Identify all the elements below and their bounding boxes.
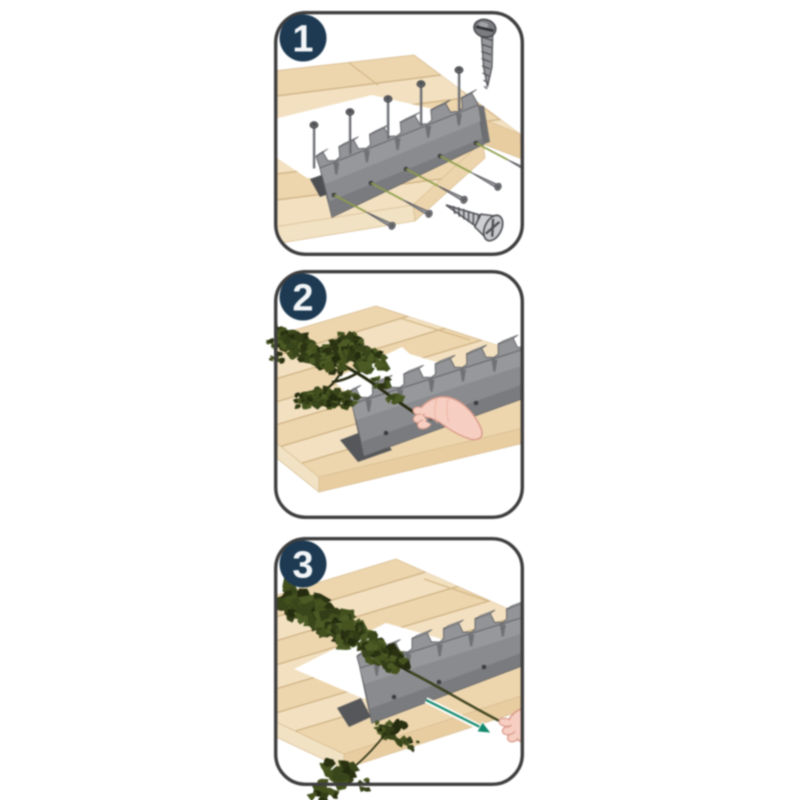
svg-text:3: 3 [292,545,313,587]
svg-text:1: 1 [292,19,313,61]
svg-text:2: 2 [292,278,313,320]
